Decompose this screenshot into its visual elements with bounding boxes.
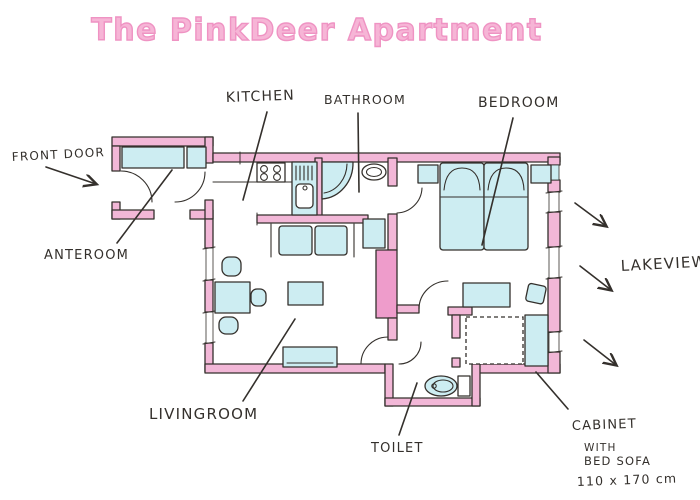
wall-segment: [397, 305, 419, 313]
room-cabinet: [466, 315, 548, 366]
wall-segment: [448, 307, 472, 315]
corner-shower: [322, 162, 353, 199]
chair: [251, 289, 266, 306]
chair: [525, 283, 546, 304]
page-title: The PinkDeer Apartment: [91, 13, 542, 48]
leader-toilet: [399, 383, 417, 435]
label-livingroom: LIVINGROOM: [149, 405, 258, 423]
leader-bathroom: [358, 113, 359, 192]
window: [549, 332, 559, 352]
wall-segment: [205, 280, 213, 312]
toilet-bowl: [425, 376, 457, 396]
label-bathroom: BATHROOM: [324, 92, 406, 107]
chair: [222, 257, 241, 276]
wall-segment-thick: [376, 250, 397, 318]
label-kitchen: KITCHEN: [226, 88, 296, 106]
label-lakeview: LAKEVIEW: [620, 252, 700, 275]
wall-segment: [388, 158, 397, 186]
label-toilet: TOILET: [370, 441, 424, 456]
wall-segment: [112, 210, 154, 219]
wall-segment: [548, 157, 560, 165]
floor-plan-drawing: The PinkDeer Apartment: [0, 0, 700, 500]
bedroom-bench: [463, 283, 510, 307]
chair: [219, 317, 238, 334]
door-arc: [361, 337, 388, 364]
wall-segment: [472, 364, 480, 406]
nightstand: [418, 165, 438, 183]
sofa: [283, 347, 337, 367]
door-arc: [175, 172, 205, 202]
bench-cushion: [279, 226, 312, 255]
bed-sofa-dashed: [466, 317, 523, 364]
wall-segment: [452, 315, 460, 338]
label-cabinet: CABINET: [572, 417, 637, 434]
wall-segment: [388, 214, 397, 250]
window: [549, 247, 559, 278]
wardrobe: [122, 147, 184, 168]
front-door-arrow: [46, 167, 96, 184]
wall-segment: [548, 352, 560, 373]
wardrobe-small: [187, 147, 206, 168]
label-front-door: FRONT DOOR: [11, 145, 105, 164]
leader-cabinet: [536, 372, 568, 409]
label-cabinet-bed-sofa: BED SOFA: [584, 454, 651, 468]
wall-segment: [548, 212, 560, 247]
lakeview-arrow: [584, 340, 616, 365]
label-cabinet-dimensions: 110 x 170 cm: [577, 471, 678, 489]
room-toilet: [399, 342, 470, 396]
lakeview-arrow: [575, 203, 606, 226]
wall-segment: [548, 278, 560, 332]
wall-segment: [205, 200, 213, 219]
wall-segment: [205, 219, 213, 248]
kitchen-sink: [296, 184, 313, 208]
bed: [440, 163, 484, 250]
window: [549, 192, 559, 212]
floor-plan-page: The PinkDeer Apartment: [0, 0, 700, 500]
wall-segment: [385, 398, 480, 406]
label-bedroom: BEDROOM: [478, 95, 559, 111]
room-anteroom: [121, 147, 206, 202]
wall-segment: [112, 146, 120, 171]
lakeview-arrow: [580, 266, 611, 290]
wall-segment: [257, 215, 368, 223]
sofa-cushion: [525, 315, 548, 366]
wall-segment: [213, 153, 560, 162]
label-anteroom: ANTEROOM: [44, 248, 129, 263]
bathroom-sink: [362, 164, 386, 180]
label-cabinet-with: WITH: [584, 442, 617, 454]
hallway-cabinet: [363, 219, 385, 248]
wall-segment: [452, 358, 460, 367]
wall-segment: [388, 318, 397, 340]
door-arc: [121, 171, 152, 202]
wall-segment: [112, 137, 213, 146]
dining-table: [215, 282, 250, 313]
room-bathroom: [322, 162, 422, 213]
door-arc: [399, 342, 421, 364]
window: [206, 312, 213, 343]
toilet-tank: [458, 376, 470, 396]
door-arc: [397, 188, 422, 213]
coffee-table: [288, 282, 323, 305]
nightstand: [531, 165, 551, 183]
door-arc: [419, 281, 448, 309]
bench-cushion: [315, 226, 347, 255]
window: [206, 248, 213, 280]
